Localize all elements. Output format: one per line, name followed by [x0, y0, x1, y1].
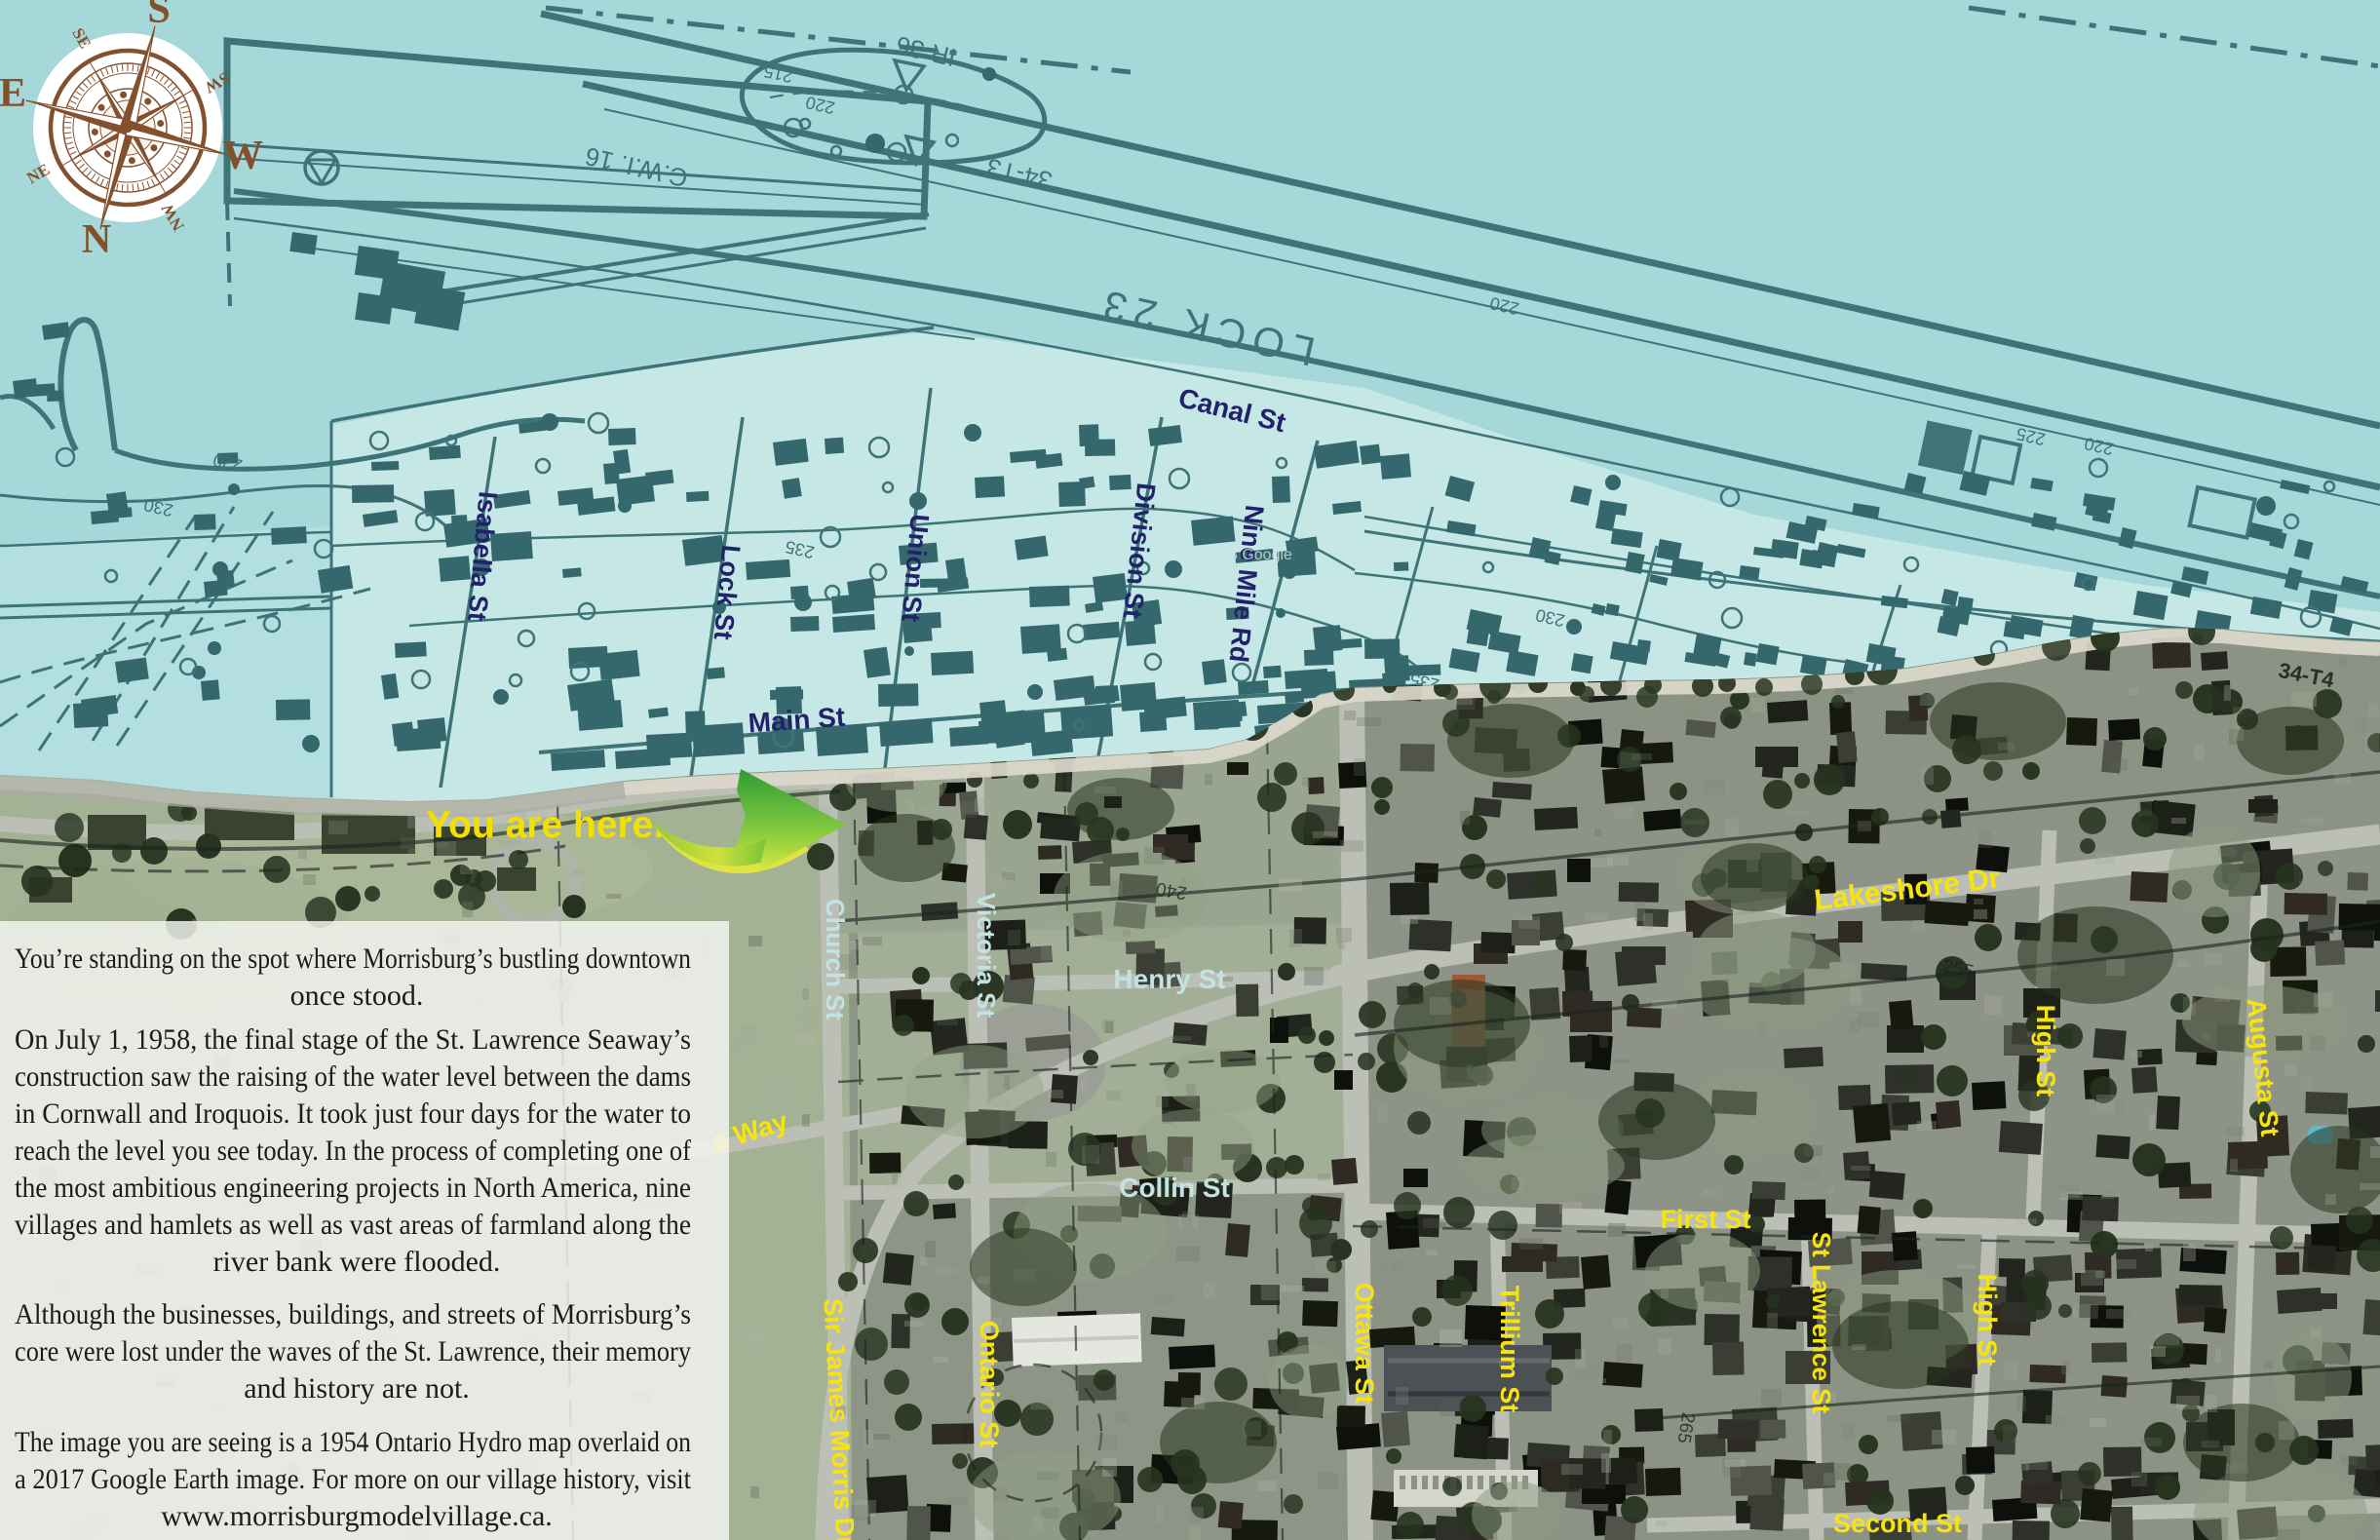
svg-text:Collin St: Collin St	[1119, 1173, 1230, 1203]
svg-text:reach the level you see today.: reach the level you see today. In the pr…	[15, 1135, 691, 1167]
svg-text:High St: High St	[2031, 1005, 2060, 1097]
svg-text:river bank were flooded.: river bank were flooded.	[213, 1246, 501, 1278]
svg-text:On July 1, 1958, the final sta: On July 1, 1958, the final stage of the …	[15, 1023, 691, 1056]
svg-text:Henry St: Henry St	[1113, 964, 1225, 994]
svg-text:High St: High St	[1973, 1274, 2002, 1367]
svg-text:in Cornwall and Iroquois. It t: in Cornwall and Iroquois. It took just f…	[15, 1097, 691, 1130]
svg-text:Trillium St: Trillium St	[1495, 1286, 1524, 1413]
svg-text:Although the businesses, build: Although the businesses, buildings, and …	[15, 1298, 691, 1330]
svg-text:once stood.: once stood.	[290, 980, 424, 1012]
svg-text:You’re standing on the spot wh: You’re standing on the spot where Morris…	[15, 943, 691, 975]
svg-text:E: E	[0, 71, 26, 116]
svg-text:First St: First St	[1660, 1205, 1750, 1234]
svg-text:and history are not.: and history are not.	[244, 1372, 470, 1405]
svg-text:You are here.: You are here.	[426, 804, 664, 846]
svg-text:W: W	[222, 134, 263, 178]
svg-text:a 2017 Google Earth image. For: a 2017 Google Earth image. For more on o…	[15, 1463, 692, 1495]
svg-text:Second St: Second St	[1833, 1509, 1962, 1538]
svg-text:Ottawa St: Ottawa St	[1350, 1283, 1379, 1405]
svg-text:S: S	[147, 0, 170, 32]
svg-text:villages and hamlets as well a: villages and hamlets as well as vast are…	[15, 1209, 691, 1241]
svg-text:Church St: Church St	[821, 899, 850, 1020]
svg-text:© 2018 Google: © 2018 Google	[1187, 547, 1292, 563]
svg-text:core were lost under the waves: core were lost under the waves of the St…	[15, 1335, 691, 1367]
svg-text:The image you are seeing is a: The image you are seeing is a 1954 Ontar…	[15, 1426, 691, 1458]
svg-text:St Lawrence St: St Lawrence St	[1807, 1232, 1836, 1414]
svg-text:www.morrisburgmodelvillage.ca.: www.morrisburgmodelvillage.ca.	[161, 1500, 553, 1532]
svg-text:construction saw the raising o: construction saw the raising of the wate…	[15, 1060, 691, 1093]
svg-text:Victoria St: Victoria St	[972, 893, 1001, 1018]
svg-text:N: N	[82, 217, 111, 262]
svg-text:Ontario St: Ontario St	[975, 1321, 1004, 1448]
svg-text:the most ambitious engineering: the most ambitious engineering projects …	[15, 1172, 691, 1204]
